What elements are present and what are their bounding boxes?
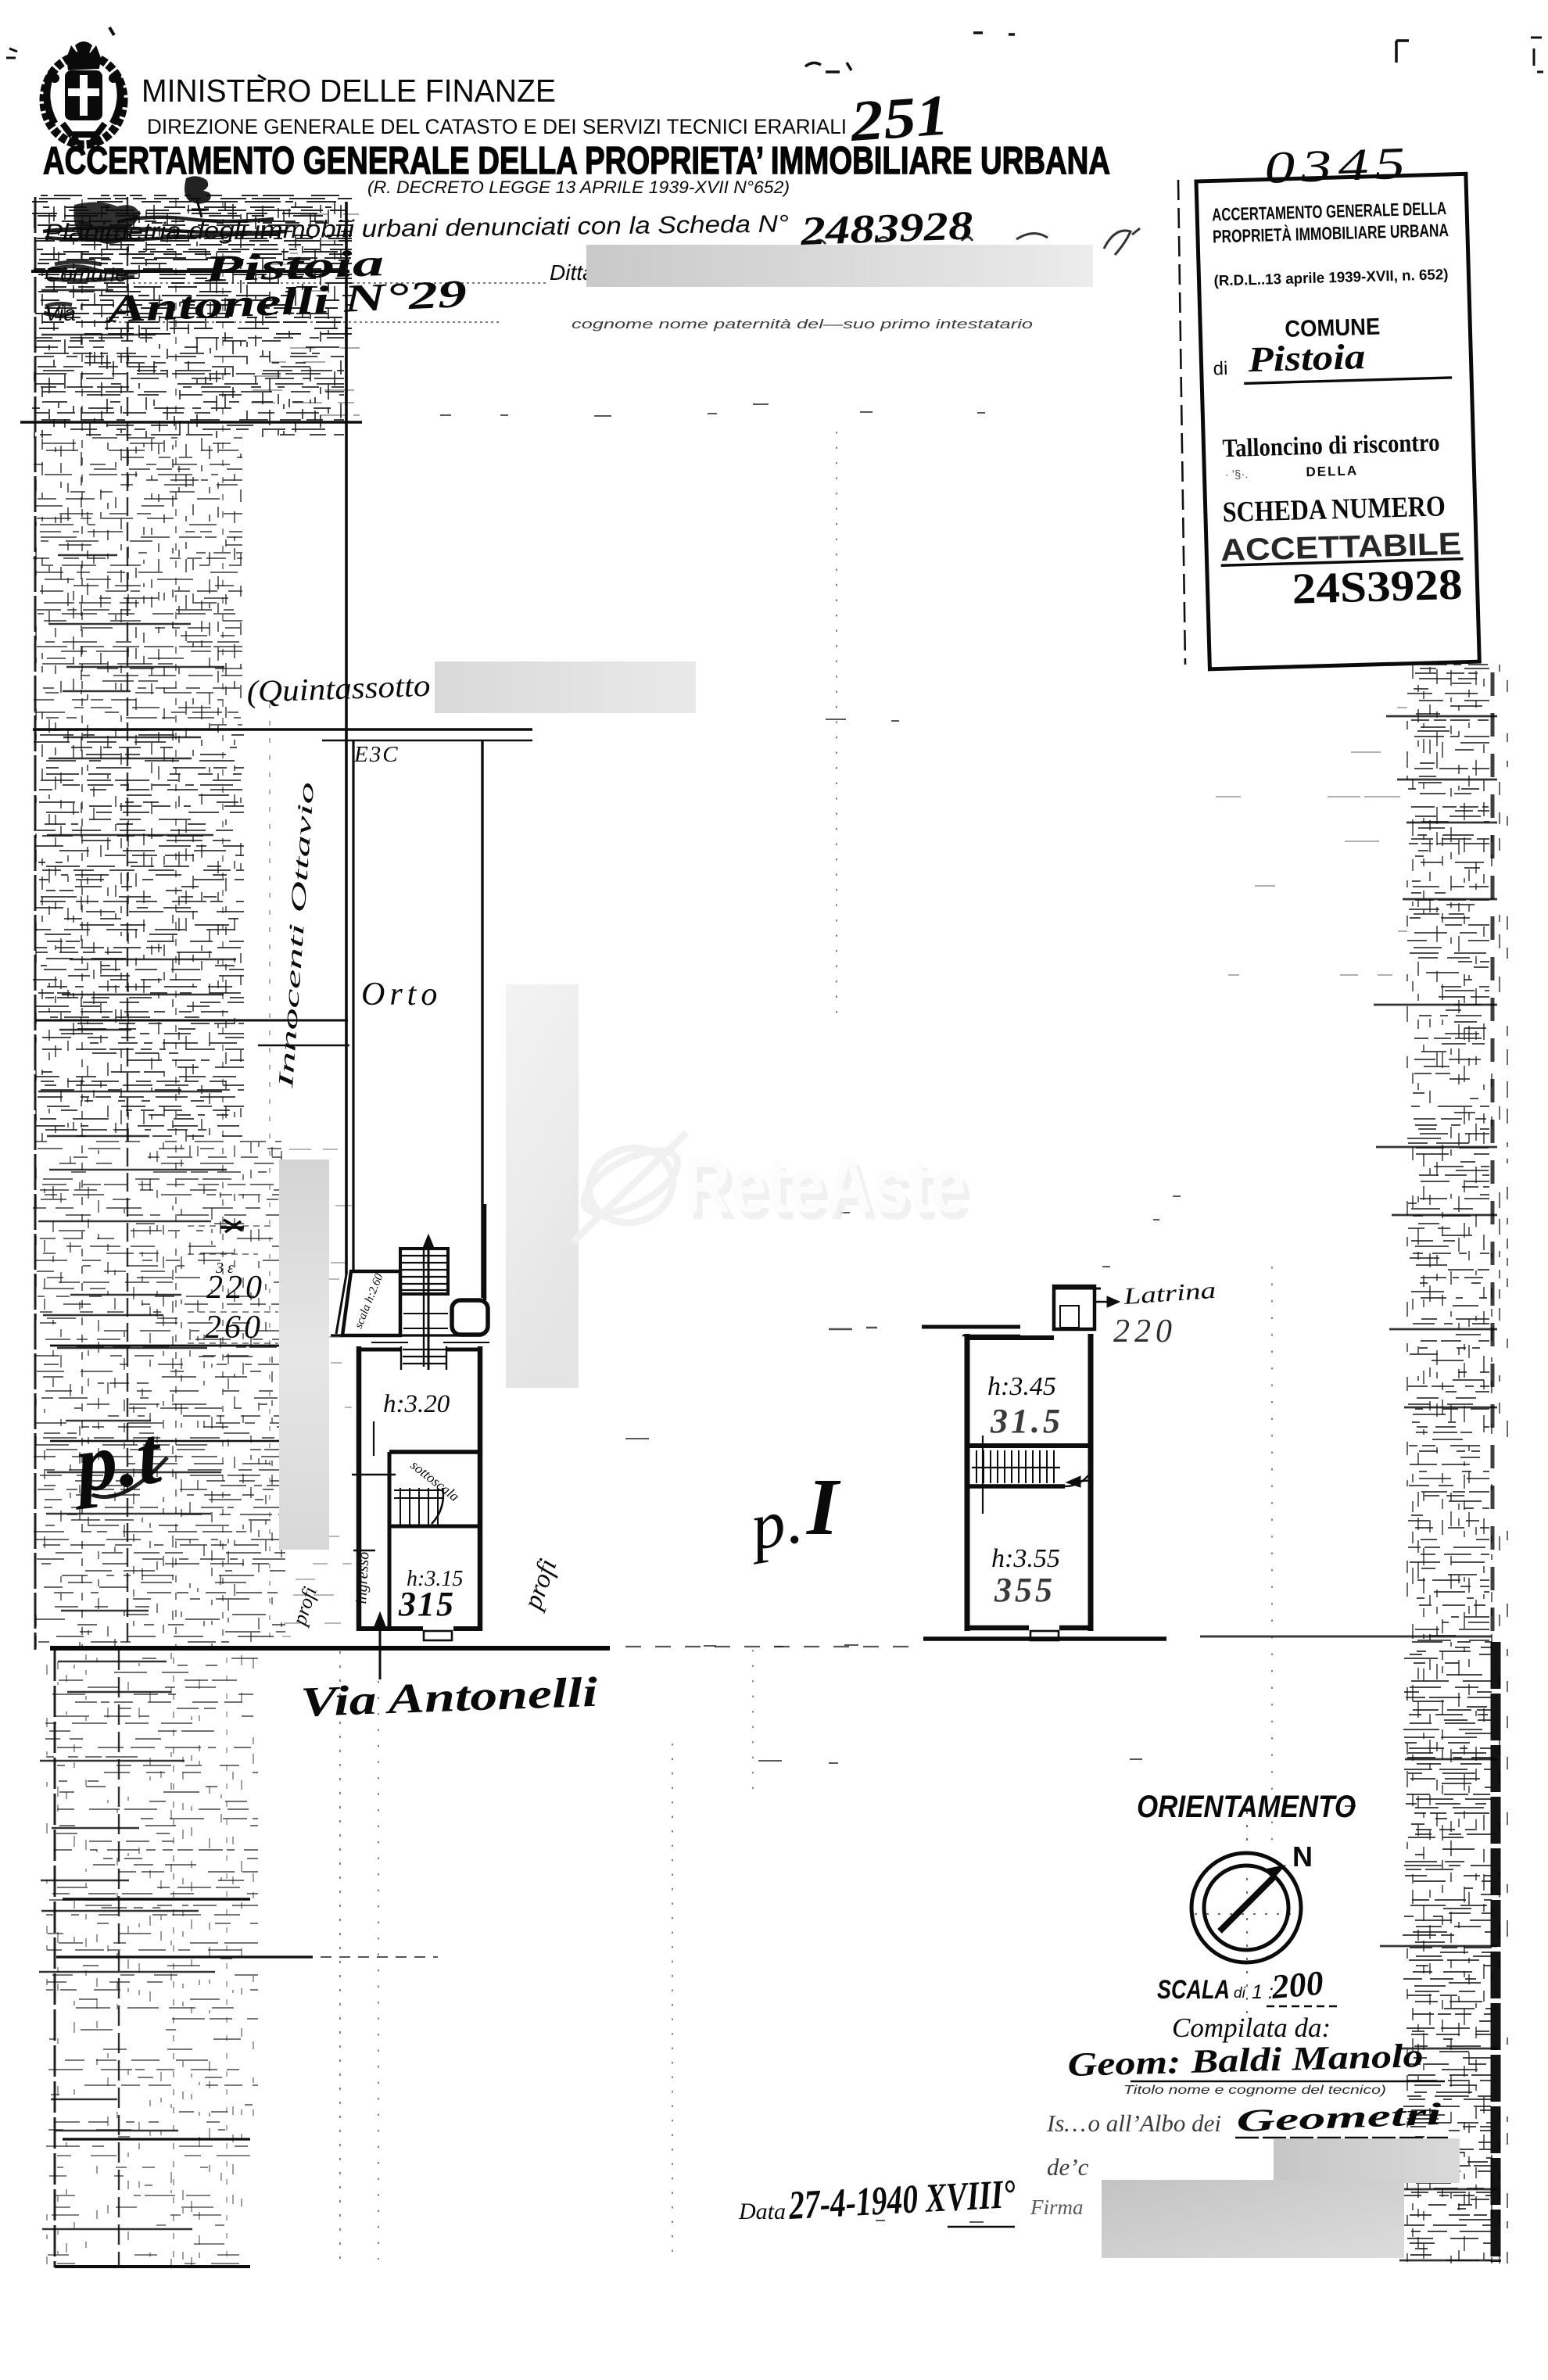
svg-text:Geometri: Geometri [1236,2096,1442,2138]
svg-text:Via Antonelli: Via Antonelli [299,1669,598,1726]
svg-text:di: di [1234,1985,1246,2002]
svg-text:31.5: 31.5 [990,1402,1063,1440]
svg-text:24S3928: 24S3928 [1292,561,1464,614]
svg-text:1 :: 1 : [1252,1981,1274,2003]
svg-text:(R. DECRETO LEGGE 13 APRILE 19: (R. DECRETO LEGGE 13 APRILE 1939-XVII N°… [367,177,790,197]
svg-text:I: I [805,1462,841,1552]
svg-text:scala h:2.60: scala h:2.60 [353,1271,386,1330]
svg-text:Data: Data [738,2199,786,2224]
svg-text:de’c: de’c [1047,2153,1089,2181]
svg-text:0345: 0345 [1263,137,1412,193]
svg-text:MINISTERO DELLE FINANZE: MINISTERO DELLE FINANZE [142,73,556,109]
svg-text:355: 355 [994,1571,1055,1609]
svg-text:SCHEDA NUMERO: SCHEDA NUMERO [1222,490,1446,529]
svg-text:Orto: Orto [361,977,442,1013]
svg-text:260: 260 [205,1310,263,1346]
svg-text:200: 200 [1270,1963,1325,2006]
svg-text:sottoscala: sottoscala [408,1457,463,1504]
svg-text:· ’§·.: · ’§·. [1224,468,1248,482]
svg-text:Innocenti Ottavio: Innocenti Ottavio [274,781,318,1090]
svg-text:ingresso: ingresso [353,1551,372,1604]
svg-text:DELLA: DELLA [1306,463,1358,479]
svg-text:3 ε: 3 ε [215,1260,234,1277]
svg-text:ReteAste: ReteAste [683,1142,966,1229]
svg-text:ORIENTAMENTO: ORIENTAMENTO [1137,1790,1356,1824]
svg-text:Latrina: Latrina [1122,1278,1217,1310]
svg-text:SCALA: SCALA [1157,1975,1230,2005]
svg-text:h:3.20: h:3.20 [383,1390,450,1418]
svg-text:profi: profi [288,1584,322,1629]
svg-text:Is… o all’Albo dei: Is… o all’Albo dei [1046,2109,1221,2137]
svg-text:cognome nome paternità del—suo: cognome nome paternità del—suo primo int… [572,317,1033,332]
svg-text:p.: p. [740,1482,808,1565]
svg-text:Talloncino di riscontro: Talloncino di riscontro [1222,428,1440,463]
svg-text:Compilata da:: Compilata da: [1172,2013,1331,2043]
svg-text:di: di [1213,358,1227,380]
svg-text:315: 315 [398,1585,455,1623]
svg-text:ACCERTAMENTO GENERALE DELLA PR: ACCERTAMENTO GENERALE DELLA PROPRIETA’ I… [43,140,1110,182]
svg-text:220: 220 [1113,1314,1177,1350]
svg-text:Antonelli N°29: Antonelli N°29 [103,271,468,331]
svg-text:Comune: Comune [45,262,127,286]
svg-text:h:3.55: h:3.55 [991,1544,1060,1573]
svg-text:N: N [1292,1841,1313,1873]
svg-text:Titolo nome e cognome del tecn: Titolo nome e cognome del tecnico) [1123,2084,1386,2097]
svg-text:Pistoia: Pistoia [1247,336,1367,379]
svg-text:profi: profi [518,1555,563,1614]
svg-text:DIREZIONE GENERALE DEL CATASTO: DIREZIONE GENERALE DEL CATASTO E DEI SER… [147,115,847,138]
svg-text:Firma: Firma [1030,2195,1084,2219]
svg-text:(R.D.L..13 aprile 1939-XVII, n: (R.D.L..13 aprile 1939-XVII, n. 652) [1213,267,1448,289]
svg-text:Via: Via [45,301,76,325]
svg-text:E3C: E3C [353,742,400,767]
svg-text:Geom: Baldi Manolo: Geom: Baldi Manolo [1067,2038,1424,2084]
svg-text:(Quintassotto: (Quintassotto [246,668,431,709]
svg-text:27-4-1940 XVIII°: 27-4-1940 XVIII° [787,2172,1016,2228]
svg-text:h:3.45: h:3.45 [987,1372,1056,1401]
